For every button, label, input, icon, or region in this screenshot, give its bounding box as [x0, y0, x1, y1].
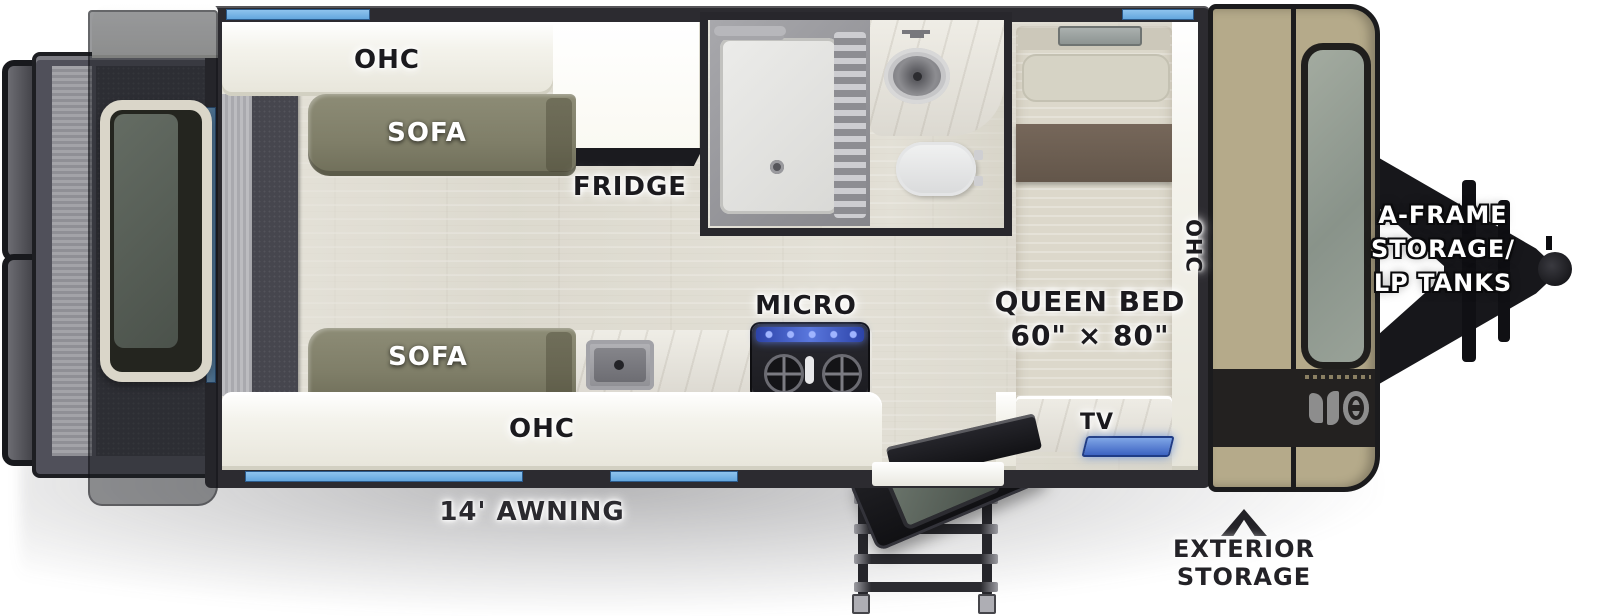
- kitchen-sink: [586, 340, 654, 390]
- rv-floorplan-canvas: OHC SOFA FRIDGE MICRO QUEEN BED 60" × 80…: [0, 0, 1600, 616]
- bed-pillows: [1022, 54, 1170, 102]
- queen-bed: [1016, 26, 1172, 412]
- window-bottom-mid: [610, 471, 738, 482]
- label-micro: MICRO: [755, 293, 857, 319]
- burner-right: [822, 354, 862, 394]
- label-sofa-bottom: SOFA: [388, 344, 468, 370]
- bathroom-faucet: [910, 34, 924, 38]
- label-ohc-bottom: OHC: [509, 416, 575, 442]
- rear-window: [100, 100, 212, 382]
- shower: [710, 20, 870, 226]
- hitch-pin: [1546, 236, 1552, 250]
- bed-runner: [1016, 124, 1172, 182]
- window-top-left: [226, 9, 370, 20]
- label-tv: TV: [1080, 412, 1114, 434]
- label-a-frame-3: LP TANKS: [1374, 271, 1512, 295]
- label-sofa-top: SOFA: [387, 120, 467, 146]
- label-fridge: FRIDGE: [573, 174, 687, 200]
- shower-drain: [770, 160, 784, 174]
- bathroom-vanity: [870, 20, 1004, 136]
- label-ohc-top: OHC: [354, 47, 420, 73]
- hitch-coupler: [1538, 252, 1572, 286]
- label-exterior-storage-2: STORAGE: [1177, 565, 1311, 589]
- rear-interior-panel-dark: [252, 94, 298, 396]
- label-queen-bed-2: 60" × 80": [1010, 322, 1169, 350]
- shower-seat: [714, 26, 786, 36]
- bathroom-sink: [884, 48, 950, 104]
- label-a-frame-2: STORAGE/: [1371, 237, 1515, 261]
- toilet: [896, 142, 976, 196]
- label-exterior-storage-1: EXTERIOR: [1173, 537, 1315, 561]
- shower-door: [834, 32, 866, 218]
- window-bottom-left: [245, 471, 523, 482]
- rear-interior-panel-light: [222, 94, 252, 396]
- brand-logo: [1309, 389, 1373, 427]
- cooktop-led-strip: [756, 327, 864, 342]
- front-cap-graphics-band: [1213, 369, 1375, 447]
- window-top-right: [1122, 9, 1194, 20]
- rear-body-panel: [52, 66, 92, 456]
- brand-tagline: [1305, 375, 1371, 379]
- label-awning: 14' AWNING: [439, 499, 624, 525]
- cooktop: [752, 324, 868, 398]
- tv-led-strip: [1081, 436, 1174, 457]
- roof-vent: [1058, 26, 1142, 46]
- burner-left: [764, 354, 804, 394]
- label-queen-bed-1: QUEEN BED: [995, 288, 1186, 316]
- front-window: [1301, 43, 1371, 369]
- entry-threshold: [872, 462, 1004, 486]
- front-cap: [1208, 4, 1380, 492]
- label-a-frame-1: A-FRAME: [1378, 203, 1507, 227]
- label-ohc-front: OHC: [1183, 219, 1204, 273]
